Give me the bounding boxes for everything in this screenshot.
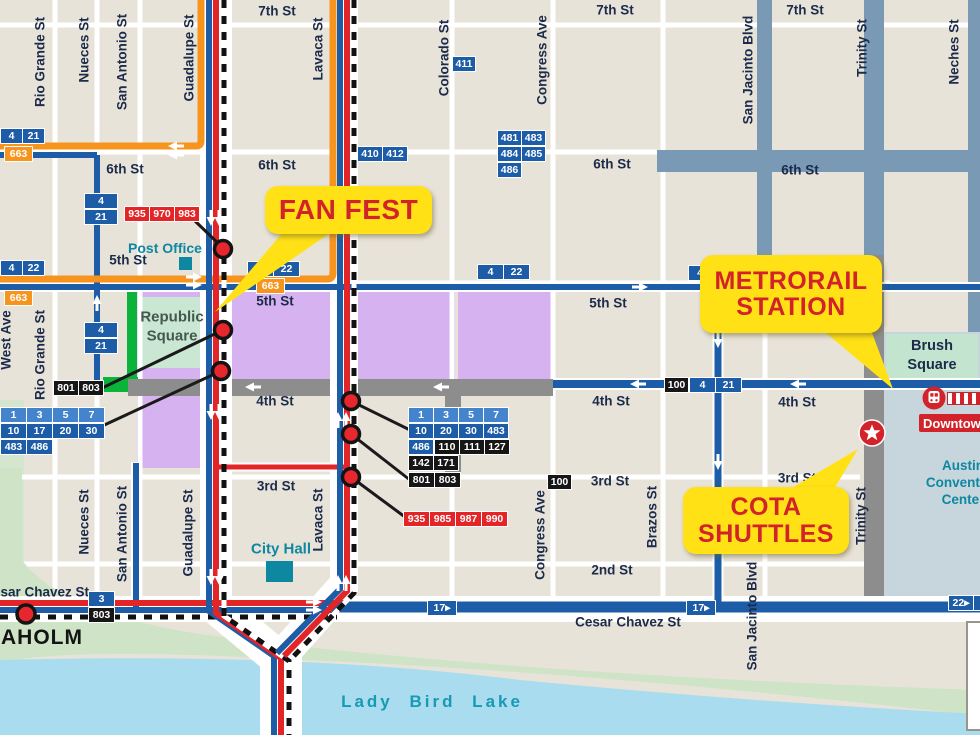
route-number: 5 bbox=[459, 408, 483, 422]
route-number: 935 bbox=[404, 512, 429, 526]
street-label-rio-grande-st: Rio Grande St bbox=[33, 17, 48, 107]
route-badge-1-3-5-7: 1357 bbox=[0, 407, 105, 423]
street-label-trinity-st: Trinity St bbox=[854, 487, 869, 545]
route-number: 1 bbox=[1, 408, 26, 422]
street-label-7th-st: 7th St bbox=[258, 4, 296, 19]
route-badge-663: 663 bbox=[4, 290, 33, 306]
route-badge-935-970-983: 935970983 bbox=[124, 206, 200, 222]
route-number: 486 bbox=[498, 163, 521, 177]
street-label-5th-st: 5th St bbox=[589, 296, 627, 311]
downtown-station-badge: Downtown bbox=[919, 414, 980, 432]
route-number: 21 bbox=[716, 378, 741, 392]
street-label-4th-st: 4th St bbox=[592, 394, 630, 409]
street-label-cesar-chavez-st: Cesar Chavez St bbox=[575, 615, 681, 630]
route-badge-10-17-20-30: 10172030 bbox=[0, 423, 105, 439]
route-badge-410-412: 410412 bbox=[357, 146, 408, 162]
route-number: 410 bbox=[358, 147, 382, 161]
route-badge-100: 100 bbox=[547, 474, 572, 490]
route-badge-21: 21 bbox=[84, 338, 118, 354]
street-label-6th-st: 6th St bbox=[593, 157, 631, 172]
route-badge-4-22: 422 bbox=[247, 261, 300, 277]
route-number: 10 bbox=[1, 424, 26, 438]
route-badge-803: 803 bbox=[88, 607, 115, 623]
route-number: 985 bbox=[430, 512, 455, 526]
street-label-nueces-st: Nueces St bbox=[77, 17, 92, 82]
route-number: 22▸ bbox=[949, 596, 973, 610]
route-number: 663 bbox=[257, 279, 284, 293]
route-badge-1-3-5-7: 1357 bbox=[408, 407, 509, 423]
street-label-brazos-st: Brazos St bbox=[645, 486, 660, 548]
route-number: 7 bbox=[79, 408, 104, 422]
route-badge-21: 21 bbox=[84, 209, 118, 225]
city-hall-icon bbox=[266, 561, 293, 582]
route-badge-486: 486 bbox=[408, 439, 434, 455]
route-number: 4 bbox=[1, 261, 22, 275]
route-badge-663: 663 bbox=[4, 146, 33, 162]
street-label-7th-st: 7th St bbox=[596, 3, 634, 18]
route-number: 486 bbox=[409, 440, 433, 454]
street-label-neches-st: Neches St bbox=[947, 19, 962, 84]
street-label-4th-st: 4th St bbox=[256, 394, 294, 409]
route-number: 483 bbox=[1, 440, 26, 454]
metrorail-track-icon bbox=[947, 392, 980, 405]
street-label-san-jacinto-blvd: San Jacinto Blvd bbox=[745, 562, 760, 671]
route-number: 5 bbox=[53, 408, 78, 422]
route-number: 485 bbox=[522, 147, 545, 161]
route-badge-4-21: 421 bbox=[689, 377, 742, 393]
route-badge-801-803: 801803 bbox=[408, 472, 461, 488]
route-badge-486: 486 bbox=[497, 162, 522, 178]
route-badge-484-485: 484485 bbox=[497, 146, 546, 162]
route-number: 4 bbox=[85, 323, 117, 337]
route-number: 110 bbox=[435, 440, 459, 454]
route-number: 970 bbox=[150, 207, 174, 221]
street-label-rio-grande-st: Rio Grande St bbox=[33, 310, 48, 400]
brush-square-label: Brush Square bbox=[907, 337, 956, 375]
route-number: 987 bbox=[456, 512, 481, 526]
route-badge-483-486: 483486 bbox=[0, 439, 53, 455]
route-badge-100: 100 bbox=[664, 377, 689, 393]
street-label-guadalupe-st: Guadalupe St bbox=[181, 489, 196, 576]
route-number: 3 bbox=[434, 408, 458, 422]
route-number: 171 bbox=[434, 456, 458, 470]
street-label-congress-ave: Congress Ave bbox=[535, 15, 550, 105]
street-label-5th-st: 5th St bbox=[109, 253, 147, 268]
route-number: 4 bbox=[248, 262, 273, 276]
seaholm-label: EAHOLM bbox=[0, 626, 83, 650]
route-number: 663 bbox=[5, 147, 32, 161]
route-number: 21 bbox=[23, 129, 44, 143]
route-badge-4-22: 422 bbox=[0, 260, 45, 276]
route-badge-935-985-987-990: 935985987990 bbox=[403, 511, 508, 527]
route-badge-3: 3 bbox=[88, 591, 115, 607]
route-number: 4 bbox=[85, 194, 117, 208]
route-number: 3 bbox=[89, 592, 114, 606]
street-label-esar-chavez-st: esar Chavez St bbox=[0, 585, 89, 600]
street-label-6th-st: 6th St bbox=[106, 162, 144, 177]
post-office-icon bbox=[179, 257, 192, 270]
route-badge-4: 4 bbox=[688, 265, 712, 281]
street-label-nueces-st: Nueces St bbox=[77, 489, 92, 554]
street-label-2nd-st: 2nd St bbox=[591, 563, 632, 578]
route-number: 483 bbox=[522, 131, 545, 145]
route-number: 803 bbox=[79, 381, 103, 395]
route-number: 22 bbox=[504, 265, 529, 279]
street-label-west-ave: West Ave bbox=[0, 310, 14, 370]
city-hall-label: City Hall bbox=[251, 541, 311, 558]
route-badge-4-22: 422 bbox=[477, 264, 530, 280]
route-number: 111 bbox=[460, 440, 484, 454]
route-badge-4: 4 bbox=[84, 322, 118, 338]
labels-layer: Post Office Republic Square City Hall Br… bbox=[0, 0, 980, 735]
route-number: 30 bbox=[459, 424, 483, 438]
route-number: 22 bbox=[274, 262, 299, 276]
route-number: 17 bbox=[27, 424, 52, 438]
route-badge-110-111-127: 110111127 bbox=[434, 439, 510, 455]
route-number: 30 bbox=[79, 424, 104, 438]
route-number: 7 bbox=[484, 408, 508, 422]
street-label-colorado-st: Colorado St bbox=[437, 20, 452, 97]
route-number: 21 bbox=[85, 210, 117, 224]
route-number: 4 bbox=[690, 378, 715, 392]
street-label-6th-st: 6th St bbox=[258, 158, 296, 173]
route-number: 127 bbox=[485, 440, 509, 454]
republic-square-label: Republic Square bbox=[140, 308, 203, 346]
street-label-lavaca-st: Lavaca St bbox=[311, 17, 326, 80]
route-number: 935 bbox=[125, 207, 149, 221]
street-label-congress-ave: Congress Ave bbox=[533, 490, 548, 580]
street-label-trinity-st: Trinity St bbox=[855, 19, 870, 77]
transit-map: Post Office Republic Square City Hall Br… bbox=[0, 0, 980, 735]
route-badge-801-803: 801803 bbox=[53, 380, 104, 396]
route-number: 411 bbox=[453, 57, 475, 71]
route-number: 4 bbox=[689, 266, 711, 280]
route-number: 4 bbox=[478, 265, 503, 279]
route-badge-4: 4 bbox=[84, 193, 118, 209]
route-badge-17: 17▸ bbox=[427, 600, 457, 616]
route-badge-22-1: 22▸1 bbox=[948, 595, 980, 611]
route-number: 983 bbox=[175, 207, 199, 221]
street-label-4th-st: 4th St bbox=[778, 395, 816, 410]
route-number: 20 bbox=[53, 424, 78, 438]
convention-center-label: Austin Convention Center bbox=[898, 458, 980, 509]
route-number: 142 bbox=[409, 456, 433, 470]
route-number: 100 bbox=[665, 378, 688, 392]
route-number: 412 bbox=[383, 147, 407, 161]
route-badge-10-20-30-483: 102030483 bbox=[408, 423, 509, 439]
route-number: 1 bbox=[409, 408, 433, 422]
route-badge-4-21: 421 bbox=[0, 128, 45, 144]
street-label-3rd-st: 3rd St bbox=[591, 474, 629, 489]
route-number: 10 bbox=[409, 424, 433, 438]
route-number: 4 bbox=[1, 129, 22, 143]
street-label-san-jacinto-blvd: San Jacinto Blvd bbox=[741, 16, 756, 125]
route-number: 483 bbox=[484, 424, 508, 438]
route-number: 100 bbox=[548, 475, 571, 489]
route-number: 21 bbox=[85, 339, 117, 353]
route-number: 803 bbox=[89, 608, 114, 622]
street-label-6th-st: 6th St bbox=[781, 163, 819, 178]
route-badge-142-171: 142171 bbox=[408, 455, 459, 471]
route-number: 803 bbox=[435, 473, 460, 487]
street-label-san-antonio-st: San Antonio St bbox=[115, 14, 130, 110]
route-number: 486 bbox=[27, 440, 52, 454]
route-badge-481-483: 481483 bbox=[497, 130, 546, 146]
street-label-guadalupe-st: Guadalupe St bbox=[182, 14, 197, 101]
street-label-lavaca-st: Lavaca St bbox=[311, 488, 326, 551]
legend-box bbox=[966, 621, 980, 731]
street-label-san-antonio-st: San Antonio St bbox=[115, 486, 130, 582]
street-label-7th-st: 7th St bbox=[786, 3, 824, 18]
route-badge-663: 663 bbox=[256, 278, 285, 294]
street-label-3rd-st: 3rd St bbox=[778, 471, 816, 486]
street-label-5th-st: 5th St bbox=[256, 294, 294, 309]
route-number: 3 bbox=[27, 408, 52, 422]
route-number: 20 bbox=[434, 424, 458, 438]
route-number: 801 bbox=[409, 473, 434, 487]
route-number: 481 bbox=[498, 131, 521, 145]
route-badge-17: 17▸ bbox=[686, 600, 716, 616]
route-number: 663 bbox=[5, 291, 32, 305]
street-label-3rd-st: 3rd St bbox=[257, 479, 295, 494]
route-number: 17▸ bbox=[428, 601, 456, 615]
route-number: 801 bbox=[54, 381, 78, 395]
lady-bird-lake-label: Lady Bird Lake bbox=[341, 692, 523, 712]
route-number: 990 bbox=[482, 512, 507, 526]
route-number: 17▸ bbox=[687, 601, 715, 615]
route-number: 484 bbox=[498, 147, 521, 161]
route-number: 22 bbox=[23, 261, 44, 275]
route-badge-411: 411 bbox=[452, 56, 476, 72]
route-number: 1 bbox=[974, 596, 980, 610]
